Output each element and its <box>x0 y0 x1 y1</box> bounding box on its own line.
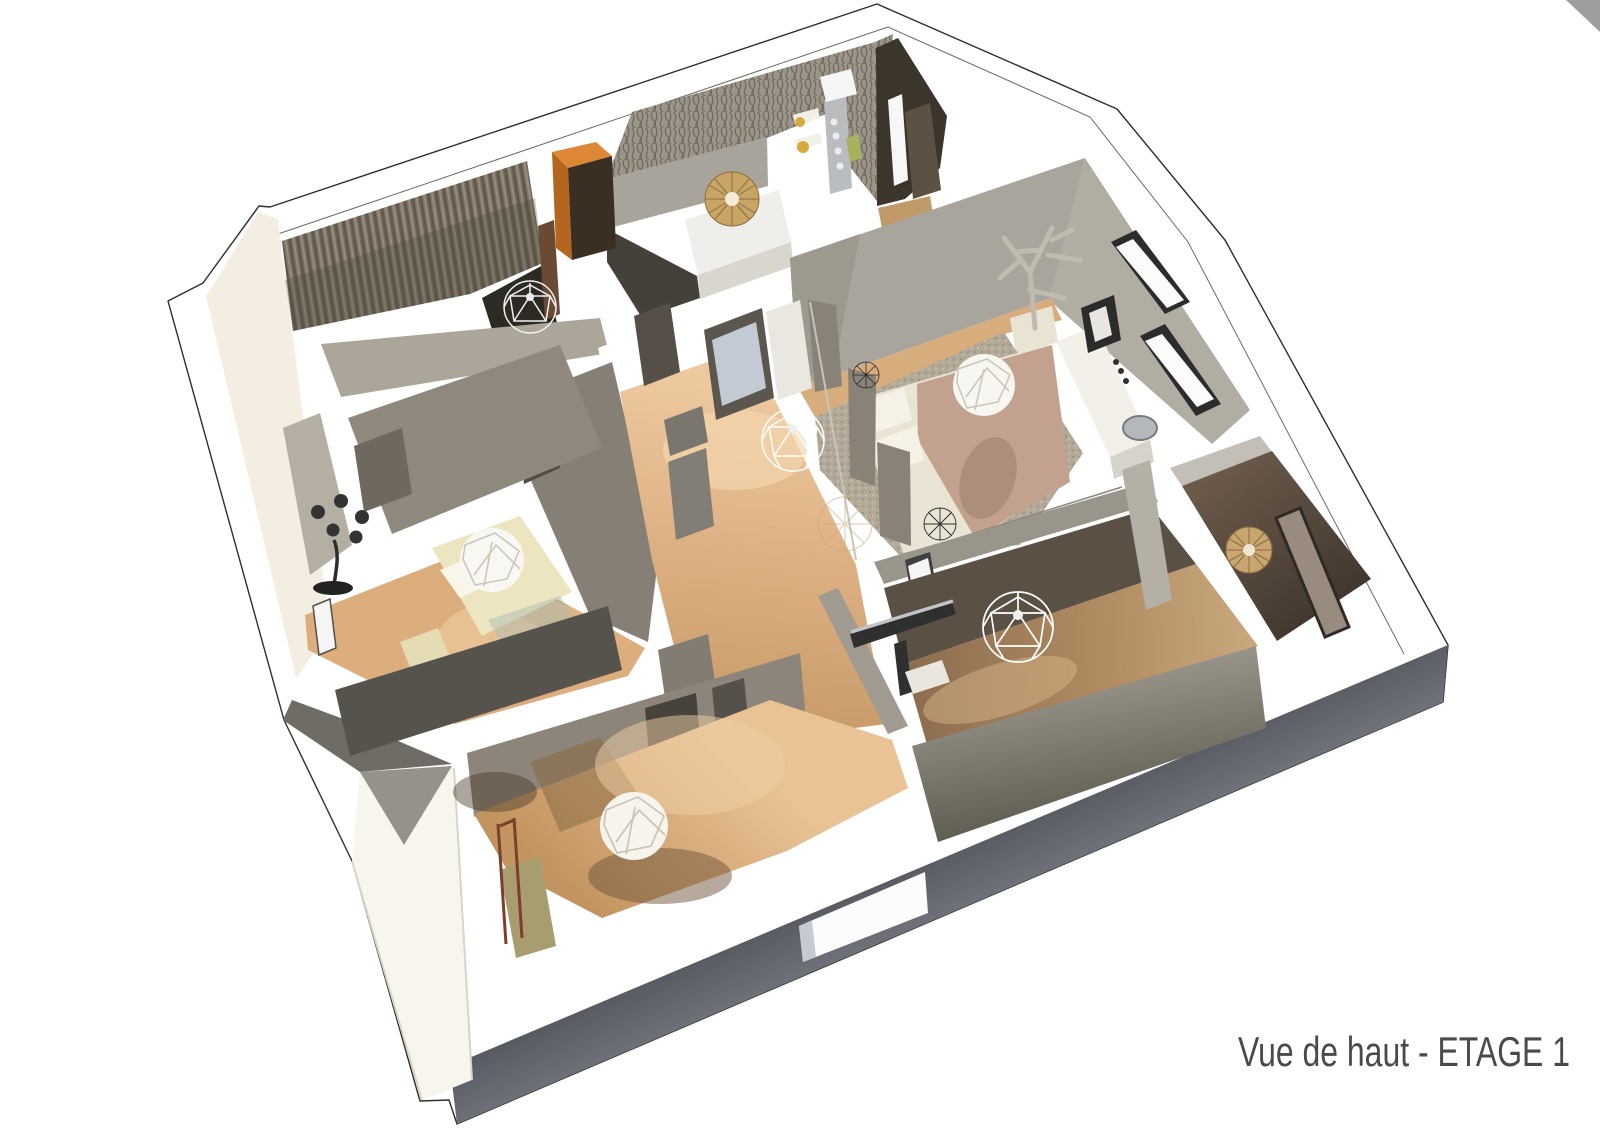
svg-text:Vue de haut - ETAGE 1: Vue de haut - ETAGE 1 <box>1238 1028 1570 1075</box>
